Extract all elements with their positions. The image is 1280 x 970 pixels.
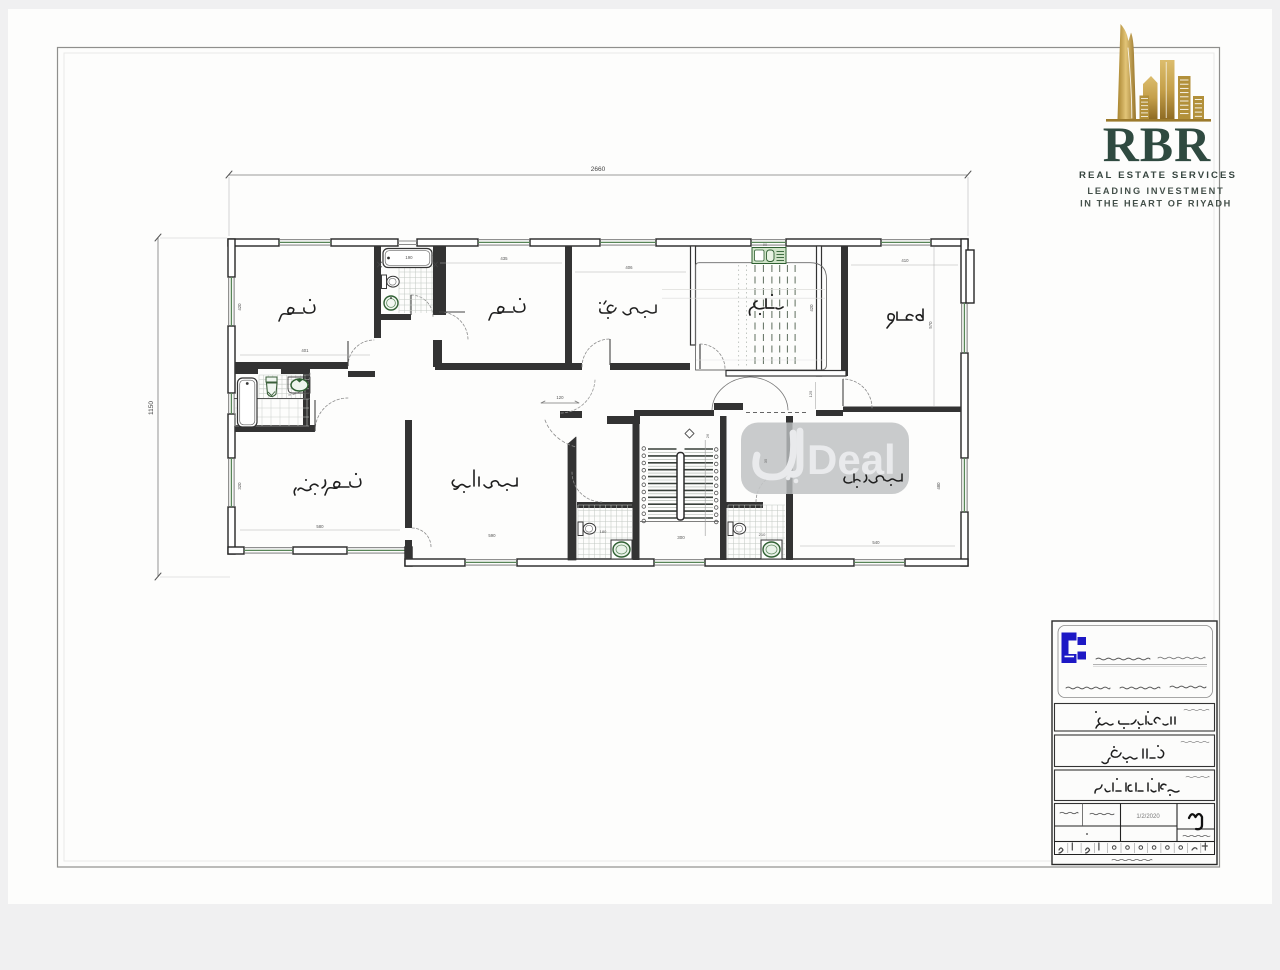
svg-text:RBR: RBR	[1103, 116, 1212, 172]
svg-text:540: 540	[872, 540, 880, 545]
svg-text:IN THE HEART OF RIYADH: IN THE HEART OF RIYADH	[1080, 199, 1232, 209]
svg-text:190: 190	[405, 255, 413, 260]
svg-text:90: 90	[763, 243, 767, 247]
svg-text:120: 120	[556, 395, 564, 400]
svg-text:180: 180	[600, 529, 607, 534]
svg-text:125: 125	[808, 390, 813, 397]
svg-text:1150: 1150	[148, 401, 155, 415]
svg-text:570: 570	[928, 321, 933, 329]
svg-text:406: 406	[625, 265, 633, 270]
svg-text:LEADING INVESTMENT: LEADING INVESTMENT	[1087, 186, 1224, 196]
svg-text:26: 26	[705, 433, 710, 438]
svg-text:210: 210	[759, 532, 766, 537]
svg-text:420: 420	[809, 304, 814, 312]
svg-text:590: 590	[488, 533, 496, 538]
svg-text:300: 300	[677, 535, 685, 540]
svg-text:435: 435	[500, 256, 508, 261]
svg-text:420: 420	[237, 303, 242, 311]
svg-text:2660: 2660	[591, 166, 606, 173]
svg-text:REAL ESTATE SERVICES: REAL ESTATE SERVICES	[1079, 170, 1237, 181]
svg-text:401: 401	[301, 348, 309, 353]
svg-text:480: 480	[936, 482, 941, 490]
svg-text:35: 35	[763, 458, 768, 463]
svg-text:580: 580	[316, 524, 324, 529]
svg-text:320: 320	[237, 482, 242, 490]
svg-text:1/2/2020: 1/2/2020	[1136, 814, 1160, 820]
svg-text:410: 410	[901, 258, 909, 263]
